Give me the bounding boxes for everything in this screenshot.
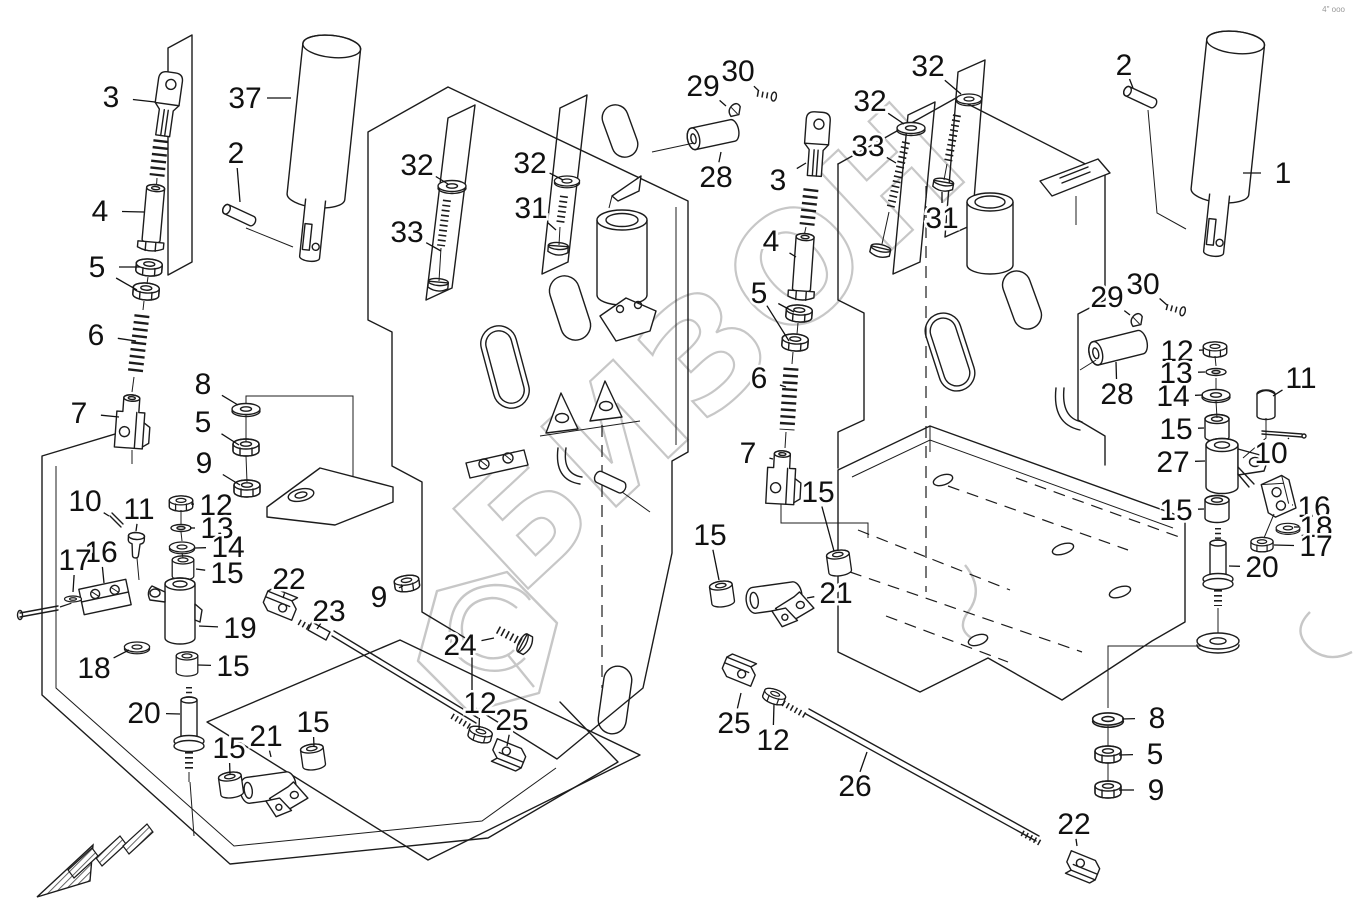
- svg-text:3: 3: [103, 81, 120, 114]
- svg-text:29: 29: [686, 70, 719, 103]
- callout-2: 2: [228, 137, 245, 202]
- callout-10: 10: [68, 485, 109, 518]
- callout-20: 20: [127, 697, 180, 730]
- svg-text:23: 23: [312, 595, 345, 628]
- parts-diagram-page: БИЗОН: [0, 0, 1353, 917]
- callout-18: 18: [77, 650, 129, 685]
- block-16: [1260, 474, 1297, 519]
- callout-17: 17: [1274, 530, 1333, 563]
- svg-text:15: 15: [296, 706, 329, 739]
- svg-text:32: 32: [400, 149, 433, 182]
- svg-text:17: 17: [58, 544, 91, 577]
- pin-2-right: [1122, 85, 1158, 109]
- callout-30: 30: [721, 55, 759, 91]
- callout-15: 15: [1159, 494, 1204, 527]
- callout-25: 25: [717, 693, 750, 740]
- callout-28: 28: [1100, 362, 1133, 411]
- svg-text:31: 31: [514, 192, 547, 225]
- svg-text:15: 15: [216, 650, 249, 683]
- svg-text:10: 10: [68, 485, 101, 518]
- callout-28: 28: [699, 152, 732, 194]
- svg-text:30: 30: [1126, 268, 1159, 301]
- svg-text:18: 18: [77, 652, 110, 685]
- callout-11: 11: [123, 493, 154, 531]
- svg-text:15: 15: [693, 519, 726, 552]
- callout-12: 12: [463, 687, 496, 730]
- svg-text:12: 12: [463, 687, 496, 720]
- svg-text:28: 28: [699, 161, 732, 194]
- pin-2-left: [221, 203, 257, 227]
- callout-2: 2: [1116, 49, 1133, 88]
- svg-text:6: 6: [751, 362, 768, 395]
- callout-22: 22: [272, 563, 305, 598]
- svg-text:32: 32: [853, 85, 886, 118]
- svg-text:7: 7: [740, 437, 757, 470]
- svg-text:4: 4: [763, 225, 780, 258]
- svg-text:25: 25: [717, 707, 750, 740]
- callout-5: 5: [89, 251, 140, 290]
- svg-text:24: 24: [443, 629, 476, 662]
- svg-text:30: 30: [721, 55, 754, 88]
- svg-text:5: 5: [1147, 738, 1164, 771]
- svg-text:15: 15: [210, 557, 243, 590]
- callout-14: 14: [1156, 380, 1203, 413]
- svg-text:11: 11: [1285, 362, 1316, 395]
- svg-text:20: 20: [127, 697, 160, 730]
- svg-text:6: 6: [88, 319, 105, 352]
- svg-text:9: 9: [196, 447, 213, 480]
- callout-21: 21: [249, 720, 282, 757]
- console-boss-left: [597, 210, 647, 305]
- svg-text:27: 27: [1156, 446, 1189, 479]
- svg-text:11: 11: [123, 493, 154, 526]
- svg-text:9: 9: [1148, 774, 1165, 807]
- callout-23: 23: [312, 595, 345, 629]
- callout-11: 11: [1273, 362, 1317, 396]
- callout-29: 29: [686, 70, 726, 106]
- svg-text:5: 5: [751, 277, 768, 310]
- callout-4: 4: [92, 195, 144, 228]
- callout-15: 15: [196, 557, 244, 590]
- callout-8: 8: [195, 368, 238, 405]
- svg-text:15: 15: [1159, 494, 1192, 527]
- svg-text:12: 12: [756, 724, 789, 757]
- svg-text:15: 15: [801, 476, 834, 509]
- callout-7: 7: [740, 437, 773, 470]
- svg-text:29: 29: [1090, 281, 1123, 314]
- svg-text:14: 14: [1156, 380, 1189, 413]
- svg-text:28: 28: [1100, 378, 1133, 411]
- bracket-21-right: [745, 579, 816, 631]
- callout-22: 22: [1057, 808, 1090, 846]
- callout-10: 10: [1254, 437, 1289, 470]
- shaft-20-right: [1203, 528, 1233, 638]
- callout-21: 21: [807, 577, 853, 610]
- svg-text:8: 8: [1149, 702, 1166, 735]
- callout-5: 5: [1119, 738, 1163, 771]
- callout-15: 15: [1159, 413, 1204, 446]
- diagram-canvas: БИЗОН: [0, 0, 1353, 917]
- svg-text:21: 21: [249, 720, 282, 753]
- direction-arrow-icon: [37, 824, 153, 897]
- svg-text:15: 15: [1159, 413, 1192, 446]
- svg-text:15: 15: [212, 732, 245, 765]
- svg-text:10: 10: [1254, 437, 1287, 470]
- svg-text:17: 17: [1299, 530, 1332, 563]
- callout-19: 19: [199, 612, 257, 645]
- callout-7: 7: [71, 397, 119, 430]
- svg-text:5: 5: [195, 406, 212, 439]
- svg-text:20: 20: [1245, 551, 1278, 584]
- callout-15: 15: [296, 706, 329, 747]
- corner-code: 4" ooo: [1322, 5, 1345, 14]
- svg-text:22: 22: [272, 563, 305, 596]
- svg-text:2: 2: [1116, 49, 1133, 82]
- callout-15: 15: [198, 650, 250, 683]
- svg-text:26: 26: [838, 770, 871, 803]
- svg-text:3: 3: [770, 164, 787, 197]
- svg-text:9: 9: [371, 581, 388, 614]
- callout-15: 15: [212, 732, 245, 774]
- callout-15: 15: [693, 519, 726, 580]
- callout-3: 3: [103, 81, 155, 114]
- callout-37: 37: [228, 82, 291, 115]
- svg-text:19: 19: [223, 612, 256, 645]
- bracket-21-left: [239, 769, 310, 821]
- shaft-20-left: [174, 687, 204, 782]
- svg-text:31: 31: [925, 202, 958, 235]
- callout-26: 26: [838, 752, 871, 803]
- console-boss-right: [967, 193, 1013, 274]
- callout-27: 27: [1156, 446, 1205, 479]
- svg-text:32: 32: [513, 147, 546, 180]
- callout-32: 32: [911, 50, 961, 94]
- callout-12: 12: [756, 704, 789, 757]
- svg-text:33: 33: [390, 216, 423, 249]
- callout-9: 9: [1119, 774, 1164, 807]
- callout-6: 6: [88, 319, 136, 352]
- svg-text:2: 2: [228, 137, 245, 170]
- knob-37: [280, 32, 361, 264]
- knob-1: [1184, 28, 1265, 259]
- svg-text:8: 8: [195, 368, 212, 401]
- callout-8: 8: [1122, 702, 1165, 735]
- callout-17: 17: [58, 544, 91, 592]
- lever-19: [148, 578, 202, 644]
- callout-30: 30: [1126, 268, 1167, 305]
- svg-text:1: 1: [1275, 157, 1292, 190]
- svg-text:33: 33: [851, 130, 884, 163]
- svg-text:37: 37: [228, 82, 261, 115]
- svg-text:21: 21: [819, 577, 852, 610]
- callout-15: 15: [801, 476, 834, 551]
- svg-text:4: 4: [92, 195, 109, 228]
- svg-text:25: 25: [495, 704, 528, 737]
- svg-text:7: 7: [71, 397, 88, 430]
- svg-text:5: 5: [89, 251, 106, 284]
- callout-20: 20: [1229, 551, 1279, 584]
- callout-29: 29: [1090, 281, 1130, 315]
- svg-text:22: 22: [1057, 808, 1090, 841]
- svg-text:32: 32: [911, 50, 944, 83]
